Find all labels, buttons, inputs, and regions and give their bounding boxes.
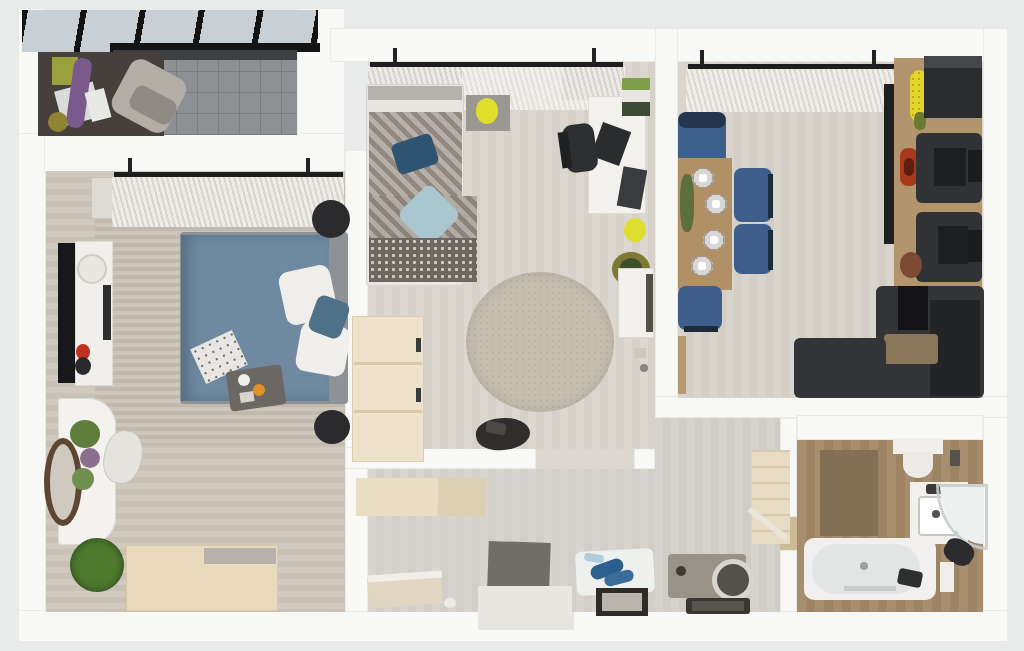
- washer-tray-inner: [692, 601, 744, 611]
- washer-door-ring: [712, 559, 754, 601]
- bedroom-curtain: [112, 177, 344, 227]
- washer-button: [676, 566, 686, 576]
- shelf-book-white: [622, 90, 650, 102]
- wall-clock: [77, 254, 107, 284]
- photo-frame-inner: [602, 593, 642, 611]
- curtain-bracket-right: [306, 158, 310, 174]
- bookshelf-books: [646, 274, 653, 332]
- red-pot-inner: [904, 158, 914, 176]
- wardrobe-divider-2: [354, 410, 422, 413]
- tv-screen: [58, 243, 75, 383]
- kids-headboard: [368, 86, 462, 100]
- vanity-plant-1: [70, 420, 100, 448]
- kids-wardrobe: [352, 316, 424, 462]
- plate-3: [703, 230, 725, 250]
- ball-yellow: [624, 218, 646, 242]
- wardrobe-handle-2: [416, 388, 421, 402]
- wardrobe-divider-1: [354, 362, 422, 365]
- lounge-chair-2-seat: [938, 226, 968, 264]
- door-handle-dot: [640, 364, 648, 372]
- hall-cabinet-door: [437, 477, 486, 517]
- wall-hook: [634, 348, 646, 358]
- decor-black: [75, 357, 91, 375]
- chair-frame-2: [768, 230, 773, 270]
- shelf-book-dark: [622, 102, 650, 116]
- tray-plate: [239, 391, 254, 403]
- dining-chair-bottom: [678, 286, 722, 330]
- tv-cabinet-slot: [103, 285, 111, 340]
- plate-1: [692, 168, 714, 188]
- rug-bathroom: [820, 450, 878, 536]
- vanity-plant-3: [72, 468, 94, 490]
- kitchen-tall-unit-top: [924, 56, 982, 68]
- bath-controls: [940, 562, 954, 592]
- armchair-blue-back: [678, 112, 726, 128]
- wall-hall-bath-lower: [780, 550, 797, 612]
- wall-hall-top-right: [634, 447, 655, 469]
- pouf-bottom: [314, 410, 350, 444]
- side-table-black: [898, 286, 928, 330]
- wall-balcony-bedroom-divider: [44, 133, 345, 173]
- toilet-bowl: [903, 452, 933, 478]
- lounge-chair-1-seat: [934, 148, 966, 186]
- tray-cup: [238, 374, 250, 386]
- sink-drain: [932, 510, 940, 518]
- storage-chest-lid: [204, 548, 276, 564]
- kids-blanket: [369, 238, 477, 282]
- doormat-gray: [487, 541, 551, 589]
- lounge-chair-1-back: [968, 150, 982, 182]
- wall-center-living-divider: [655, 28, 678, 418]
- wall-outer-left: [18, 133, 46, 642]
- plate-2: [705, 194, 727, 214]
- kids-bracket-right: [592, 48, 596, 64]
- desk-round-tin: [48, 112, 68, 132]
- curtain-bracket-left: [128, 158, 132, 174]
- kids-curtain-rail: [370, 62, 623, 67]
- floor-plant: [70, 538, 124, 592]
- dining-chair-right-2: [734, 224, 772, 274]
- kids-curtain-right: [562, 66, 624, 100]
- table-herbs: [680, 174, 694, 232]
- entry-mat: [478, 586, 572, 616]
- dining-chair-right-1: [734, 168, 772, 222]
- tub-drain: [860, 562, 868, 570]
- corner-sofa-bottom: [794, 338, 886, 398]
- living-curtain-rail: [688, 64, 924, 69]
- threshold-kids-room-door: [536, 447, 634, 469]
- sofa-cushion-tan: [884, 334, 938, 364]
- tub-rail: [844, 586, 896, 591]
- kids-bracket-left: [393, 48, 397, 64]
- hall-wall-cabinet: [356, 478, 438, 516]
- tray-orange-juice: [253, 384, 265, 396]
- wood-plank: [678, 336, 686, 394]
- floor-plan-scene: [0, 0, 1024, 651]
- plate-4: [691, 256, 713, 276]
- bath-wall-item: [950, 450, 960, 466]
- hall-white-dot: [444, 598, 456, 608]
- vanity-plant-2: [80, 448, 100, 468]
- wardrobe-handle-1: [416, 338, 421, 352]
- living-bracket-left: [700, 50, 704, 66]
- round-rug: [466, 272, 614, 412]
- pouf-top: [312, 200, 350, 238]
- living-bracket-right: [872, 50, 876, 66]
- shelf-book-green: [622, 78, 650, 90]
- chair-frame-1: [768, 174, 773, 218]
- chair-frame-bottom: [684, 326, 718, 332]
- decor-bowl-brown: [900, 252, 922, 278]
- wall-bath-top: [797, 415, 983, 440]
- lounge-chair-2-back: [968, 230, 982, 262]
- kitchen-dark-panel: [884, 84, 894, 244]
- toy-yellow: [476, 98, 498, 124]
